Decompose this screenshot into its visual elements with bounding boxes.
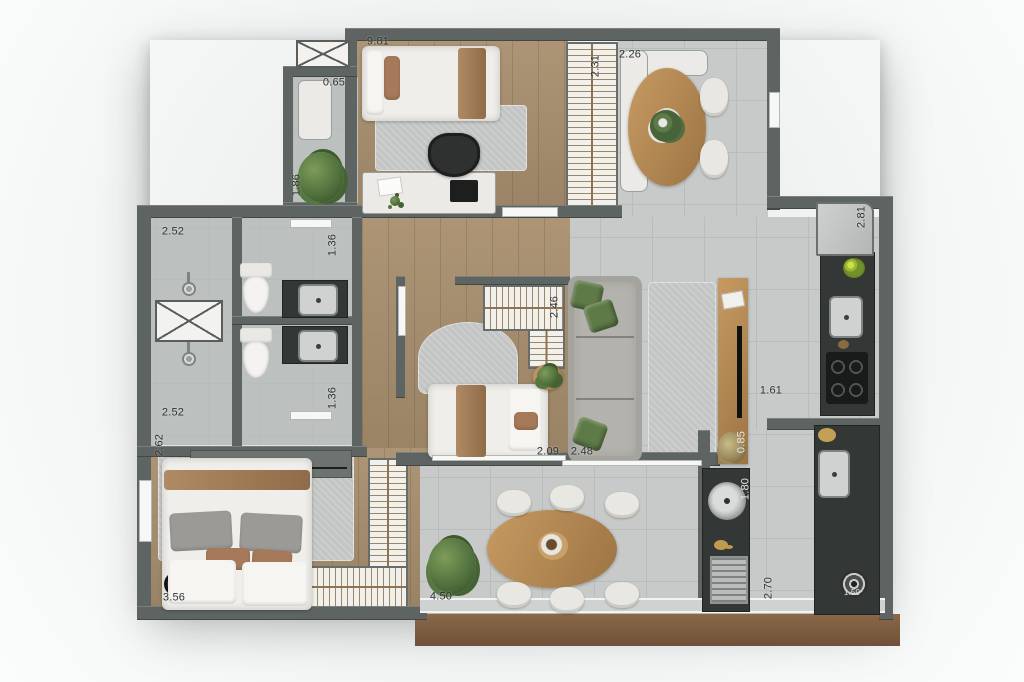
- toilet-bottom: [240, 328, 272, 378]
- dim-living-width: 2.48: [571, 447, 593, 458]
- sofa-cushion-line-1: [576, 336, 634, 338]
- dim-bedroom-mid-closet: 2.46: [550, 296, 561, 318]
- dim-kitchen-passage: 1.61: [760, 386, 782, 397]
- terrace-chair-3: [605, 492, 639, 518]
- dining-chair-2: [700, 140, 728, 178]
- rug-living: [648, 282, 716, 454]
- toilet-top: [240, 263, 272, 313]
- deck-strip: [415, 614, 900, 646]
- service-grill: [710, 556, 748, 604]
- wall-bedroom-mid-top: [455, 276, 570, 285]
- terrace-chair-1: [497, 490, 531, 516]
- cooktop: [826, 352, 868, 404]
- vanity-bottom-sink: [298, 330, 338, 362]
- throw-bed-mid: [456, 385, 486, 457]
- terrace-centerpiece: [538, 532, 568, 560]
- door-terrace-sliding-2: [562, 460, 702, 466]
- dim-service-depth: 2.70: [764, 577, 775, 599]
- toilet-top-bowl: [243, 276, 270, 313]
- plant-balcony: [298, 152, 344, 202]
- dim-hall-closet: 2.31: [591, 55, 602, 77]
- window-bedroom-bottom: [139, 480, 152, 542]
- vanity-top-sink: [298, 284, 338, 316]
- desk-chair: [428, 133, 480, 177]
- desk-plant: [390, 196, 400, 206]
- door-bath-top: [290, 219, 332, 228]
- dim-washer: 1.50: [844, 589, 860, 597]
- dim-bath-top-width: 2.52: [162, 227, 184, 238]
- dim-terrace-width: 4.50: [430, 592, 452, 603]
- door-bath-bottom: [290, 411, 332, 420]
- pillow-bb-white-2: [242, 562, 308, 606]
- shaft-top-left: [296, 40, 350, 68]
- closet-bedroom-bottom-a: [368, 458, 408, 580]
- dim-bedroom-bottom-width: 3.56: [163, 593, 185, 604]
- shower-head-bottom: [182, 352, 196, 366]
- dim-bedroom-mid-width: 2.09: [537, 447, 559, 458]
- service-sink: [818, 450, 850, 498]
- closet-bedroom-mid-b: [528, 329, 565, 369]
- kitchen-sink: [829, 296, 863, 338]
- dining-chair-1: [700, 78, 728, 116]
- door-bedroom-mid: [398, 286, 406, 336]
- wall-right: [879, 196, 893, 620]
- throw-bed-top: [458, 48, 486, 119]
- pillow-mid-brown: [514, 412, 538, 430]
- terrace-chair-2: [550, 485, 584, 511]
- flowers-centerpiece: [650, 110, 682, 142]
- dim-dining-width: 2.26: [619, 50, 641, 61]
- dim-kitchen-counter: 2.81: [857, 206, 868, 228]
- tv: [737, 326, 742, 418]
- door-bedroom-top: [502, 207, 558, 217]
- shower-head-top: [182, 282, 196, 296]
- terrace-chair-5: [550, 587, 584, 613]
- wall-left: [137, 205, 151, 620]
- dim-bedroom-bottom-depth: 2.62: [155, 434, 166, 456]
- laptop: [450, 180, 478, 202]
- fruit-bowl: [843, 258, 865, 278]
- wall-top: [345, 28, 780, 41]
- plant-side-table: [537, 366, 559, 386]
- small-bowl: [838, 340, 849, 349]
- shaft-bathrooms: [155, 300, 223, 342]
- gold-bowl: [818, 428, 836, 442]
- dim-balcony-top-width: 0.65: [323, 78, 345, 89]
- desk-paper: [377, 176, 403, 196]
- dim-bath-top-depth: 1.36: [328, 234, 339, 256]
- pillow-top-brown: [384, 56, 400, 100]
- pillow-top-white: [366, 51, 384, 115]
- dim-balcony-top-depth: 1.86: [292, 174, 303, 196]
- door-dining-side: [769, 92, 780, 128]
- pillow-bb-gray-1: [169, 510, 233, 551]
- terrace-chair-4: [497, 582, 531, 608]
- lounge-chair: [298, 80, 332, 140]
- floor-plan: 9.81 0.65 1.86 2.31 2.26 2.81 2.52 1.36 …: [0, 0, 1024, 682]
- dim-bedroom-top-width: 9.81: [367, 37, 389, 48]
- dim-laundry-counter: 1.80: [741, 478, 752, 500]
- throw-bed-bottom: [164, 470, 310, 490]
- sofa-cushion-line-2: [576, 398, 634, 400]
- plant-terrace: [428, 538, 476, 594]
- dim-bath-bottom-width: 2.52: [162, 408, 184, 419]
- dim-bath-bottom-depth: 1.36: [328, 387, 339, 409]
- pillow-bb-gray-2: [239, 512, 303, 553]
- terrace-chair-6: [605, 582, 639, 608]
- dim-console-width: 0.85: [737, 431, 748, 453]
- wall-bath-right: [352, 217, 362, 457]
- toilet-bottom-bowl: [243, 341, 270, 378]
- gold-items: [714, 540, 728, 550]
